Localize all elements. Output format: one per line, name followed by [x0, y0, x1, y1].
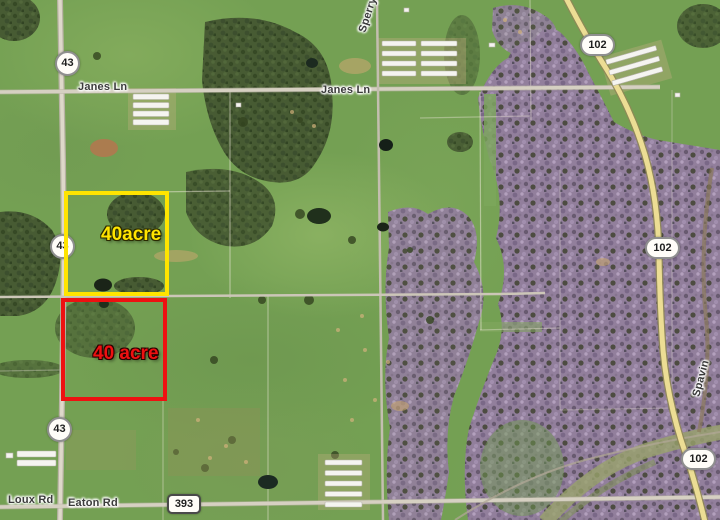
road-label-janes-ln-east: Janes Ln [321, 84, 370, 96]
road-label-eaton-rd: Eaton Rd [68, 497, 118, 509]
satellite-map: 40acre 40 acre Janes Ln Janes Ln Sperry … [0, 0, 720, 520]
parcel-outline-red-40acre: 40 acre [61, 298, 167, 401]
road-label-janes-ln-west: Janes Ln [78, 81, 127, 93]
route-shield-102-middle: 102 [645, 237, 680, 259]
route-shield-393: 393 [167, 494, 201, 514]
road-label-loux-rd: Loux Rd [8, 494, 53, 506]
route-shield-43-top: 43 [55, 51, 80, 76]
parcel-label-yellow: 40acre [101, 224, 161, 246]
route-shield-43-bottom: 43 [47, 417, 72, 442]
parcel-label-red: 40 acre [93, 343, 159, 365]
parcel-outline-yellow-40acre: 40acre [64, 191, 169, 296]
route-shield-102-top: 102 [580, 34, 615, 56]
route-shield-102-bottom: 102 [681, 448, 716, 470]
